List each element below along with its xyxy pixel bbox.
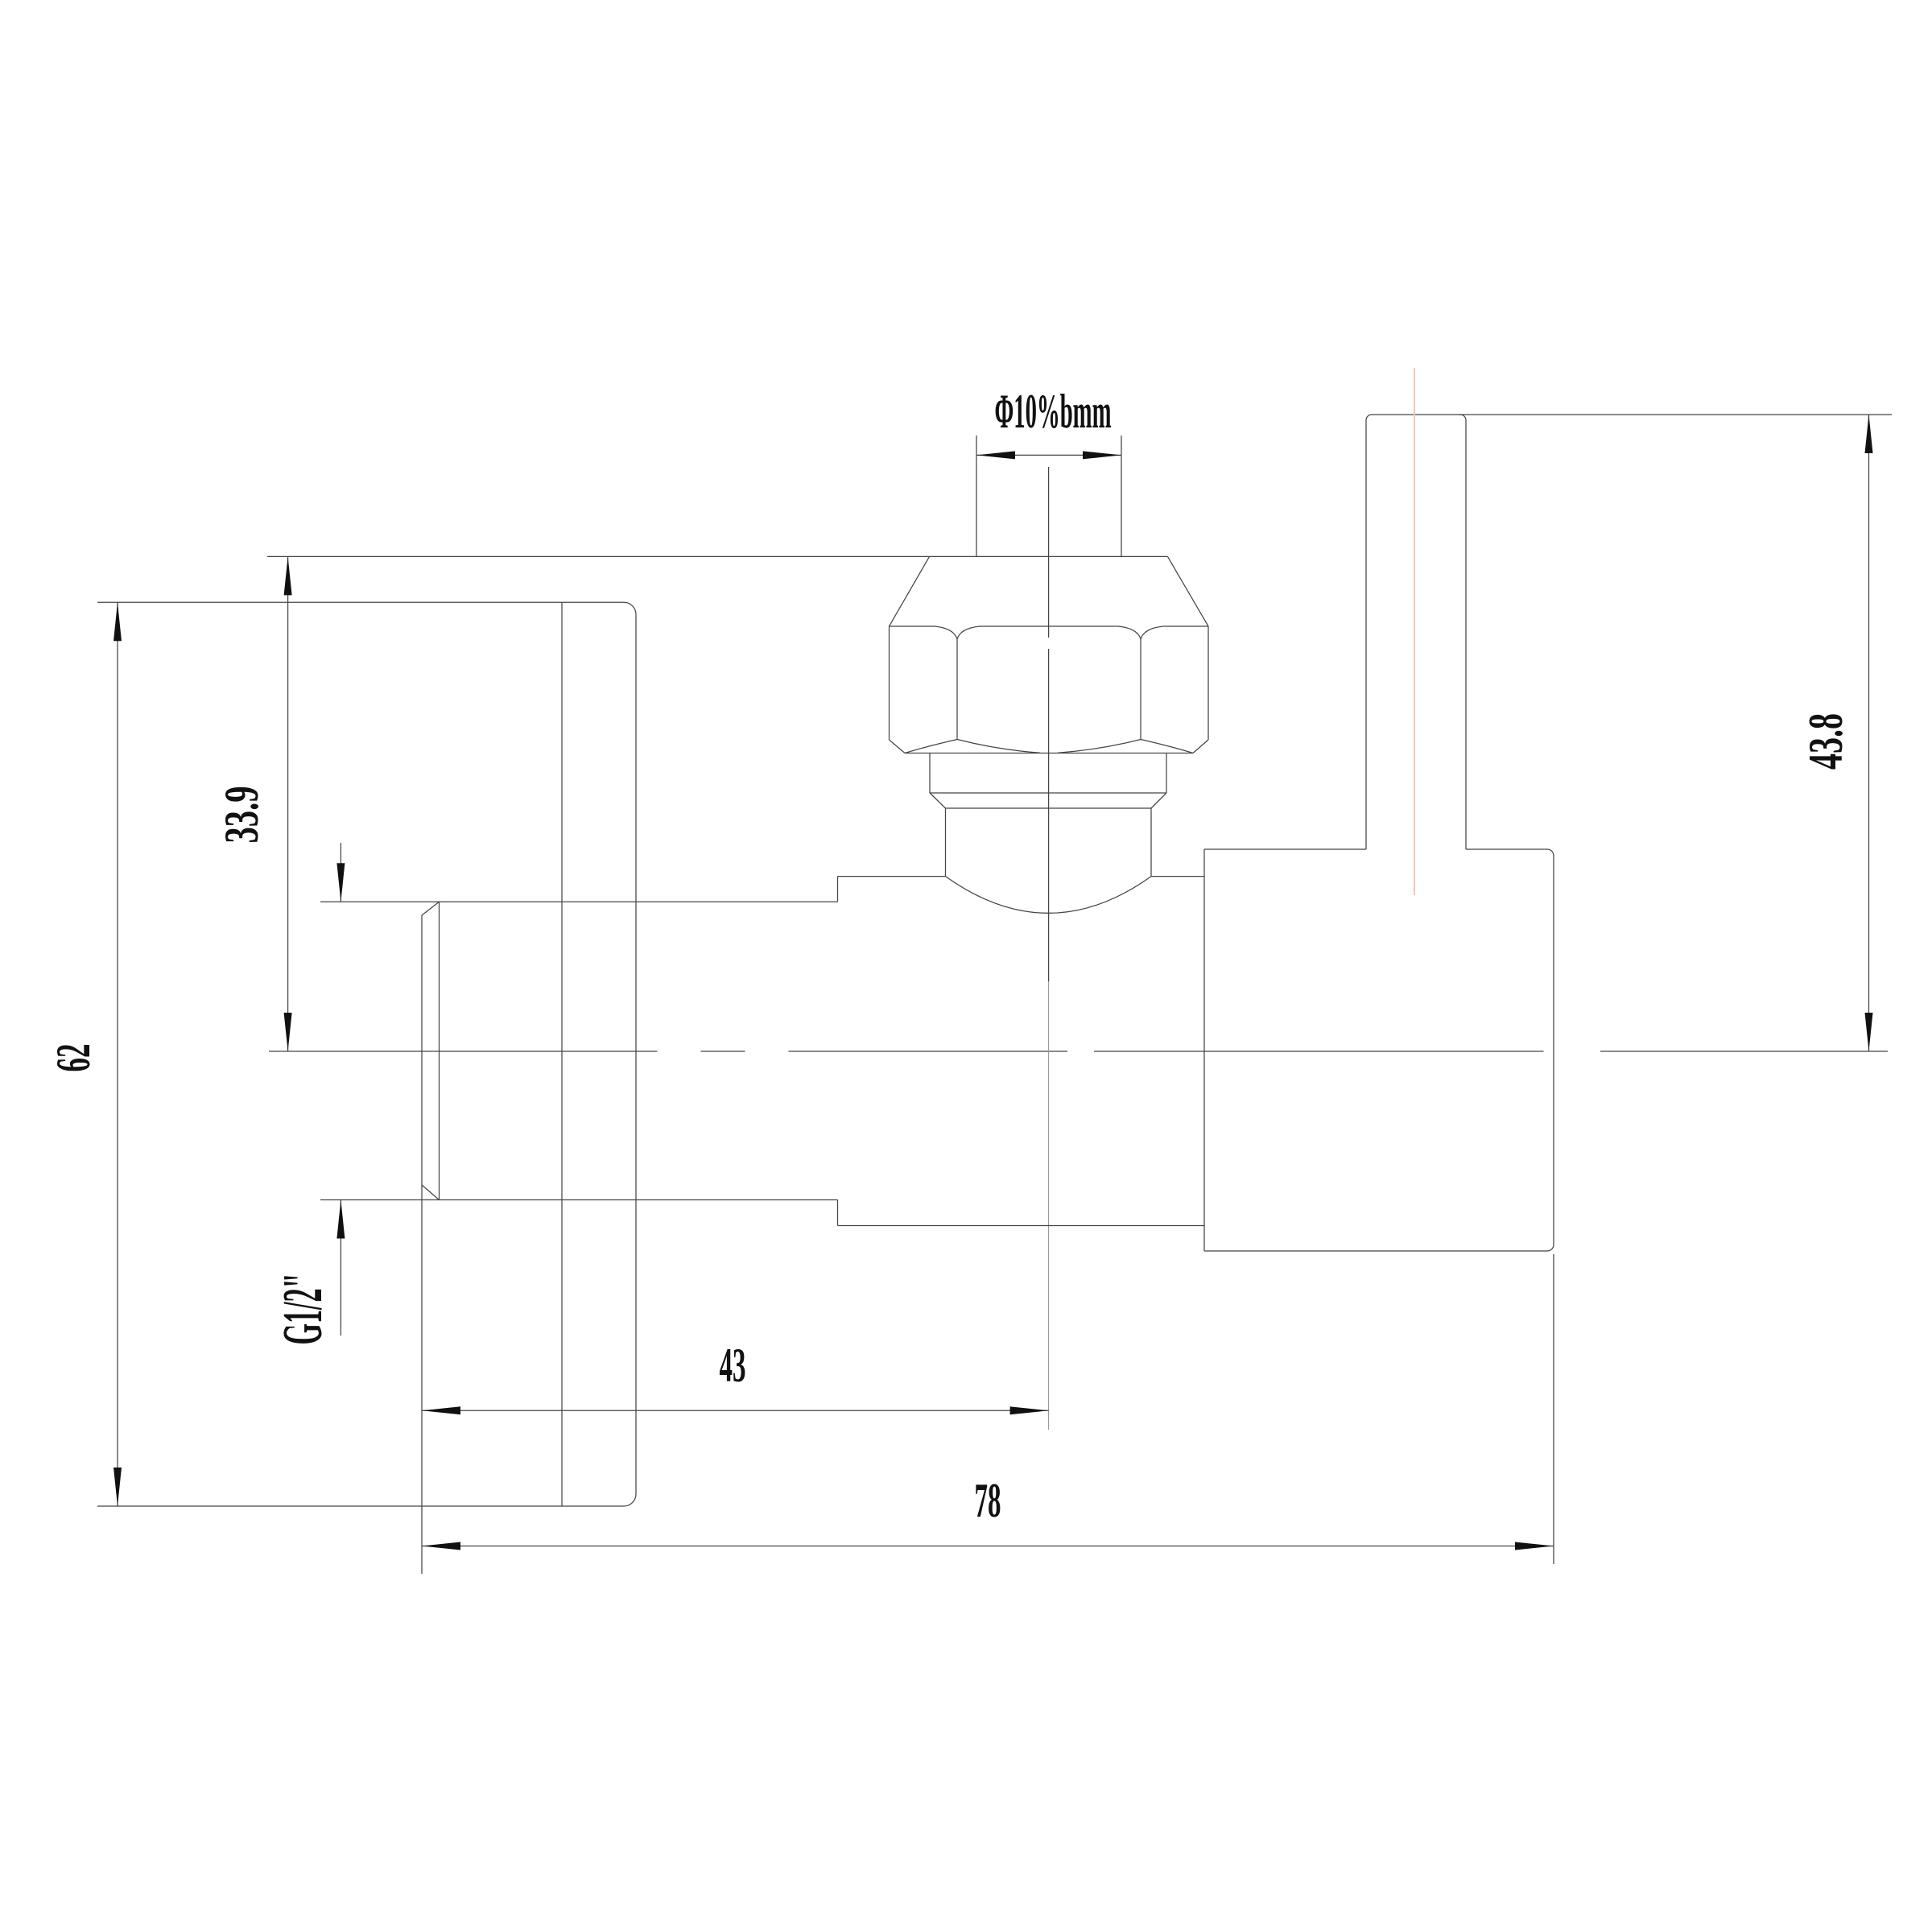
svg-text:43: 43 [720, 1339, 746, 1392]
svg-text:62: 62 [47, 1044, 100, 1072]
svg-text:33.9: 33.9 [215, 786, 268, 844]
svg-text:78: 78 [975, 1474, 1001, 1527]
svg-text:43.8: 43.8 [1799, 713, 1852, 770]
svg-text:Φ10%bmm: Φ10%bmm [995, 385, 1112, 438]
svg-text:G1/2": G1/2" [272, 1274, 334, 1345]
